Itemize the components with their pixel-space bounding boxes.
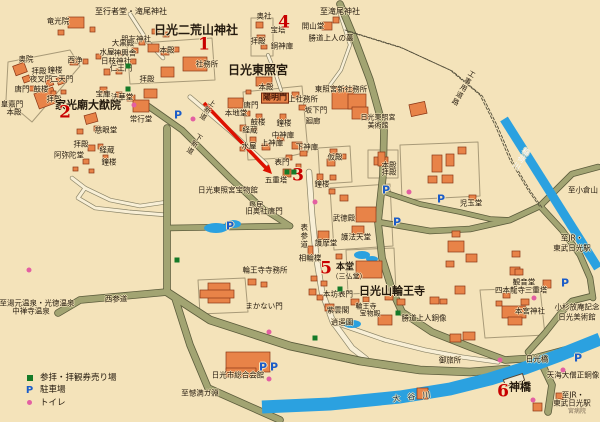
map-label: 鐘楼	[102, 158, 117, 166]
map-label: 小杉放庵記念	[555, 303, 600, 311]
map-label: 本宮神社	[515, 307, 545, 315]
building	[228, 98, 243, 108]
building	[463, 332, 475, 340]
building	[329, 189, 335, 194]
building	[200, 290, 234, 298]
building	[13, 62, 28, 76]
building	[515, 269, 523, 275]
legend-label: 参拝・拝観券売り場	[40, 374, 117, 383]
building	[246, 90, 251, 94]
map-label: 武徳殿	[333, 214, 356, 222]
building	[442, 175, 453, 183]
map-label: 表門	[275, 158, 290, 166]
map-label: 御旅所	[439, 356, 462, 364]
ticket-icon	[313, 336, 318, 341]
map-label: 鐘楼	[315, 180, 330, 188]
map-label: 上社務所	[288, 95, 318, 103]
map-legend: 参拝・拝観券売り場 P 駐車場 トイレ	[24, 374, 117, 407]
map-label: 奥社	[257, 12, 272, 20]
parking-icon: P	[574, 353, 582, 364]
map-label: 日光橋	[526, 355, 549, 363]
map-label: 社務所	[196, 60, 219, 68]
building	[321, 281, 327, 286]
map-label: 東武日光駅	[553, 399, 591, 407]
building	[466, 254, 477, 262]
map-label: 水屋	[100, 48, 115, 56]
map-label: 天海大僧正銅像	[547, 371, 600, 379]
route-marker-5: 5	[320, 261, 332, 278]
toilet-icon	[191, 117, 196, 122]
building	[248, 279, 256, 285]
map-label: 下神庫	[296, 143, 319, 151]
map-label: 奥院	[19, 55, 34, 63]
map-label: 本地堂	[225, 109, 248, 117]
map-label: 宝庫	[96, 90, 111, 98]
toilet-icon	[267, 330, 272, 335]
map-label: まかない門	[245, 302, 283, 310]
parking-icon: P	[382, 185, 390, 196]
ticket-icon	[24, 375, 35, 381]
map-label: 日光東照宮	[228, 64, 288, 76]
map-label: 旧奥社唐門	[245, 207, 283, 215]
map-label: 東照宮新社務所	[315, 85, 368, 93]
map-label: 本殿	[259, 83, 274, 91]
building	[446, 261, 454, 267]
toilet-icon	[27, 268, 32, 273]
map-label: 拝殿	[74, 140, 89, 148]
building	[452, 231, 460, 237]
map-label: 拝殿	[251, 37, 266, 45]
legend-item: P 駐車場	[24, 386, 117, 396]
map-label: 常行堂	[130, 115, 153, 123]
building	[496, 301, 502, 306]
map-label: 逍遥園	[331, 318, 354, 326]
legend-label: トイレ	[40, 399, 66, 408]
ticket-icon	[126, 64, 131, 69]
map-label: 宝物殿	[360, 311, 381, 318]
building	[336, 254, 342, 259]
building	[261, 45, 267, 49]
nikko-area-map: 至行者堂・滝尾神社至滝尾神社竜光院日光二荒山神社奥社宝塔拝殿銅神庫開山堂勝道上人…	[0, 0, 600, 422]
legend-item: トイレ	[24, 399, 117, 408]
map-label: 至滝尾神社	[320, 8, 360, 16]
toilet-icon	[532, 296, 537, 301]
toilet-icon	[561, 368, 566, 373]
building	[333, 17, 339, 23]
map-label: 護法天堂	[341, 233, 371, 241]
map-label: 西浄	[68, 56, 83, 64]
building	[330, 175, 336, 180]
building	[432, 155, 442, 172]
building	[356, 207, 376, 222]
building	[533, 403, 542, 411]
ticket-icon	[126, 87, 131, 92]
parking-icon: P	[270, 362, 278, 373]
map-label: 児玉堂	[460, 199, 483, 207]
map-label: 表参道	[300, 223, 308, 249]
map-label: 日光山輪王寺	[359, 286, 425, 297]
route-marker-4: 4	[278, 15, 290, 32]
building	[397, 299, 405, 305]
map-label: 美術館	[368, 123, 389, 130]
yomeimon-highlight-label: 陽明門	[261, 93, 289, 104]
map-label: 三重塔	[525, 286, 548, 294]
map-label: 輪王寺寺務所	[243, 266, 288, 274]
building	[161, 67, 174, 77]
map-label: 勝道上人の墓	[309, 34, 354, 42]
building	[84, 113, 98, 125]
building	[61, 90, 66, 94]
map-label: 竜光院	[47, 17, 70, 25]
map-label: 廻廊	[306, 117, 321, 125]
building	[450, 334, 461, 342]
map-label: 鼓楼	[34, 85, 49, 93]
map-label: 相輪橖	[299, 254, 322, 262]
map-label: 開山堂	[302, 22, 325, 30]
ticket-icon	[396, 311, 401, 316]
building	[73, 167, 78, 171]
map-label: 四本龍寺	[495, 286, 525, 294]
building	[68, 17, 84, 28]
parking-icon: P	[561, 278, 569, 289]
map-label: 五重塔	[265, 176, 288, 184]
parking-icon: P	[24, 386, 35, 396]
map-label: 本堂	[336, 264, 354, 273]
route-marker-1: 1	[198, 37, 210, 54]
map-label: 本殿	[7, 108, 22, 116]
building	[311, 276, 317, 281]
map-label: 拝殿	[140, 75, 155, 83]
map-label: 至行者堂・滝尾神社	[95, 8, 167, 16]
building	[148, 44, 159, 52]
map-label: 経蔵	[100, 146, 115, 154]
map-label: 上神庫	[261, 139, 284, 147]
building	[144, 89, 157, 98]
building	[89, 169, 94, 173]
map-label: 日光二荒山神社	[154, 24, 238, 36]
parking-icon: P	[174, 110, 182, 121]
building	[309, 289, 316, 295]
building	[300, 151, 307, 156]
toilet-icon	[313, 200, 318, 205]
map-label: 阿弥陀堂	[54, 151, 84, 159]
map-label: 夜叉門	[30, 75, 53, 83]
map-label: 銅神庫	[271, 42, 294, 50]
map-label: 大黒殿	[112, 39, 135, 47]
building	[521, 299, 529, 305]
map-label: 水屋	[242, 142, 257, 150]
map-label: 勝道上人銅像	[402, 314, 447, 322]
building	[363, 297, 369, 302]
map-graphics	[0, 0, 600, 422]
building	[83, 159, 89, 164]
map-label: 慈眼堂	[95, 126, 118, 134]
toilet-icon	[531, 398, 536, 403]
building	[83, 59, 88, 64]
toilet-icon	[498, 358, 503, 363]
building	[428, 176, 437, 183]
map-label: 西参道	[105, 295, 128, 303]
building	[512, 251, 520, 257]
map-label: 神橋	[509, 382, 531, 393]
ticket-icon	[338, 287, 343, 292]
building	[508, 317, 522, 325]
toilet-icon	[267, 377, 272, 382]
map-label: 宮病院	[568, 409, 586, 415]
building	[448, 241, 464, 252]
route-marker-6: 6	[497, 384, 509, 401]
building	[409, 101, 427, 116]
map-label: 坂下門	[305, 106, 328, 114]
toilet-icon	[132, 103, 137, 108]
legend-label: 駐車場	[40, 386, 66, 395]
building	[261, 282, 267, 287]
map-label: 仮殿	[328, 153, 343, 161]
map-label: 至憾満ガ淵	[181, 389, 219, 397]
parking-icon: P	[226, 221, 234, 232]
building	[446, 154, 454, 166]
map-label: 日光市総合会館	[212, 371, 265, 379]
map-label: 本殿	[160, 46, 175, 54]
route-marker-2: 2	[59, 105, 71, 122]
map-label: 鐘楼	[277, 119, 292, 127]
pond	[204, 223, 228, 233]
map-label: 東武日光駅	[553, 244, 591, 252]
ticket-icon	[285, 170, 290, 175]
legend-item: 参拝・拝観券売り場	[24, 374, 117, 383]
map-label: 経蔵	[243, 126, 258, 134]
map-path	[384, 192, 510, 220]
parking-icon: P	[437, 194, 445, 205]
toilet-icon	[407, 190, 412, 195]
map-label: 日光東照宮	[361, 115, 396, 122]
building	[88, 145, 95, 151]
building	[77, 129, 83, 134]
building	[58, 30, 64, 35]
map-label: 二天門	[51, 75, 74, 83]
building	[458, 147, 466, 154]
map-label: 日光美術館	[558, 313, 596, 321]
ticket-icon	[292, 170, 297, 175]
map-label: 唐門	[15, 85, 30, 93]
map-label: 紫雲閣	[327, 306, 350, 314]
parking-icon: P	[259, 362, 267, 373]
map-label: 日光東照宮宝物館	[198, 186, 258, 194]
map-label: 鐘楼	[48, 66, 63, 74]
building	[455, 286, 465, 294]
ticket-icon	[175, 258, 180, 263]
map-label: （三仏堂）	[332, 274, 367, 281]
map-label: 至JR・	[561, 234, 583, 242]
building	[256, 22, 263, 28]
building	[430, 297, 439, 304]
toilet-icon	[24, 400, 35, 405]
parking-icon: P	[393, 217, 401, 228]
map-label: 至小倉山	[568, 186, 598, 194]
map-label: 護摩堂	[315, 239, 338, 247]
building	[90, 27, 95, 32]
map-label: 拝殿	[382, 168, 397, 176]
building	[440, 299, 447, 304]
building	[340, 195, 348, 201]
map-label: 中禅寺温泉	[12, 307, 50, 315]
